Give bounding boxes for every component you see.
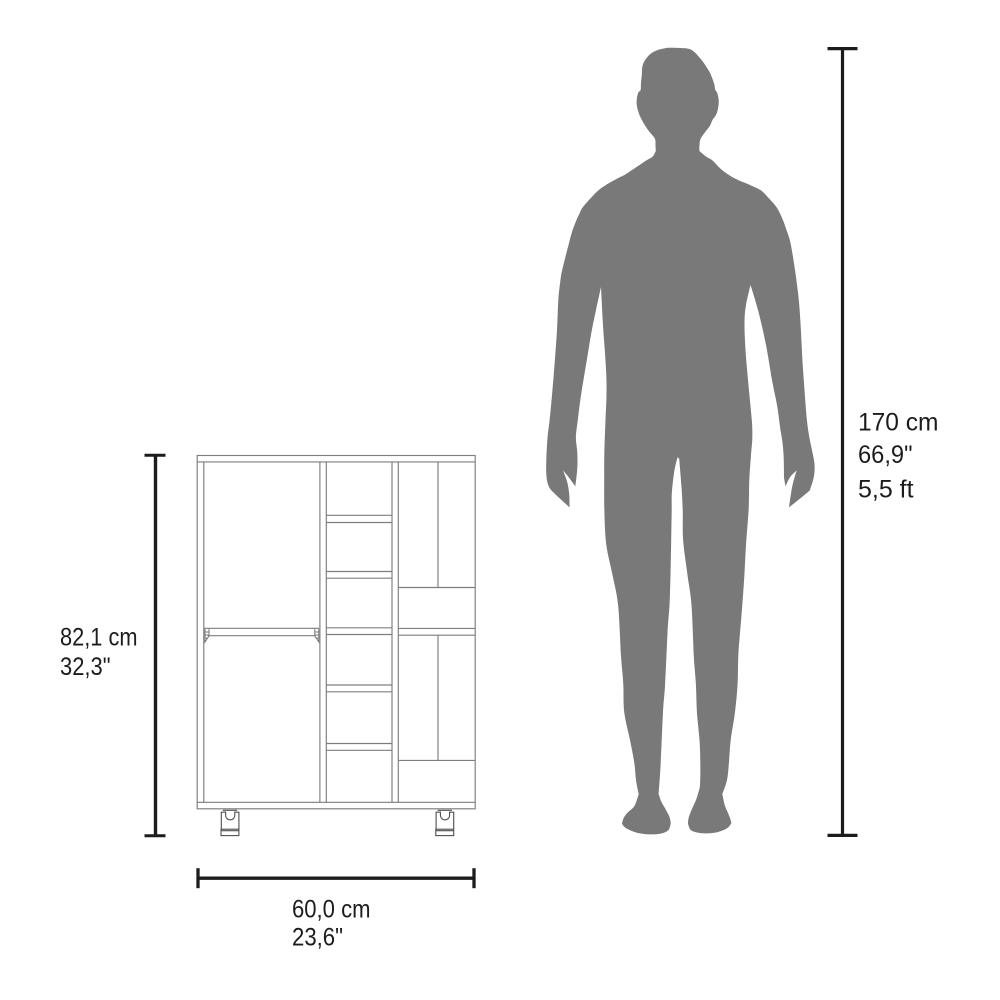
- svg-text:170 cm: 170 cm: [858, 409, 939, 437]
- svg-text:82,1 cm: 82,1 cm: [60, 624, 138, 652]
- svg-text:5,5 ft: 5,5 ft: [858, 476, 914, 504]
- svg-text:66,9": 66,9": [858, 441, 913, 469]
- svg-text:60,0 cm: 60,0 cm: [292, 896, 371, 924]
- svg-text:23,6": 23,6": [292, 924, 343, 952]
- svg-text:32,3": 32,3": [60, 653, 111, 681]
